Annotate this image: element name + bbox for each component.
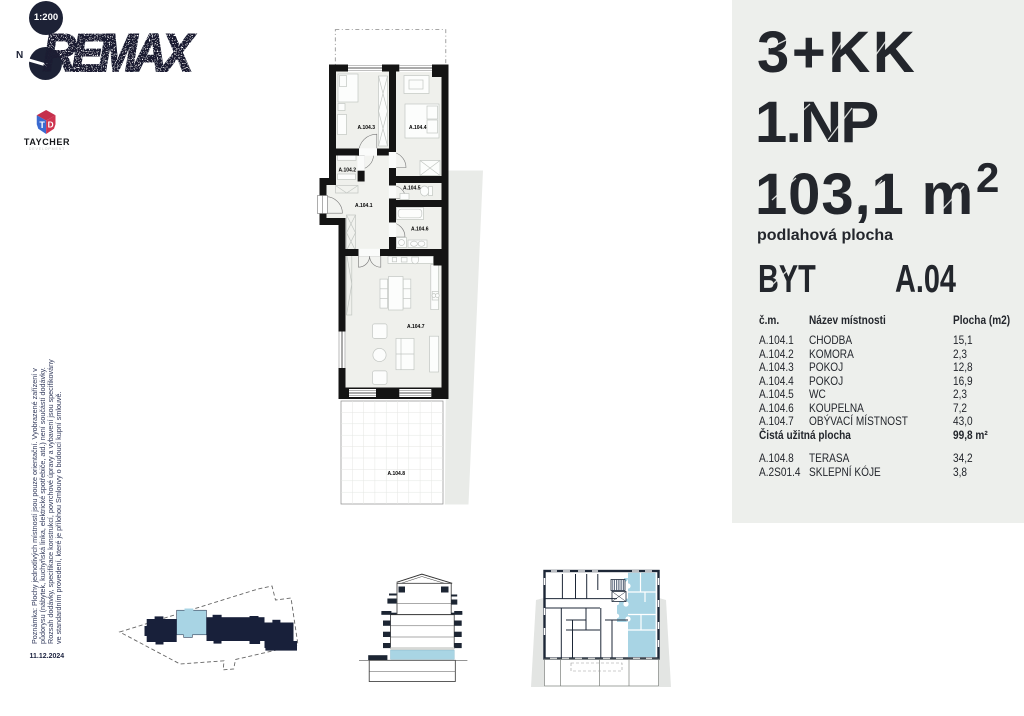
svg-text:A.104.8: A.104.8 [388,471,406,477]
svg-text:A.104.7: A.104.7 [407,324,425,330]
svg-text:A.104.4: A.104.4 [409,125,427,131]
svg-text:A.104.1: A.104.1 [355,203,373,209]
svg-text:A.104.3: A.104.3 [358,125,376,131]
svg-text:A.104.2: A.104.2 [339,168,357,174]
svg-text:A.104.5: A.104.5 [403,185,421,191]
svg-text:A.104.6: A.104.6 [411,226,429,232]
